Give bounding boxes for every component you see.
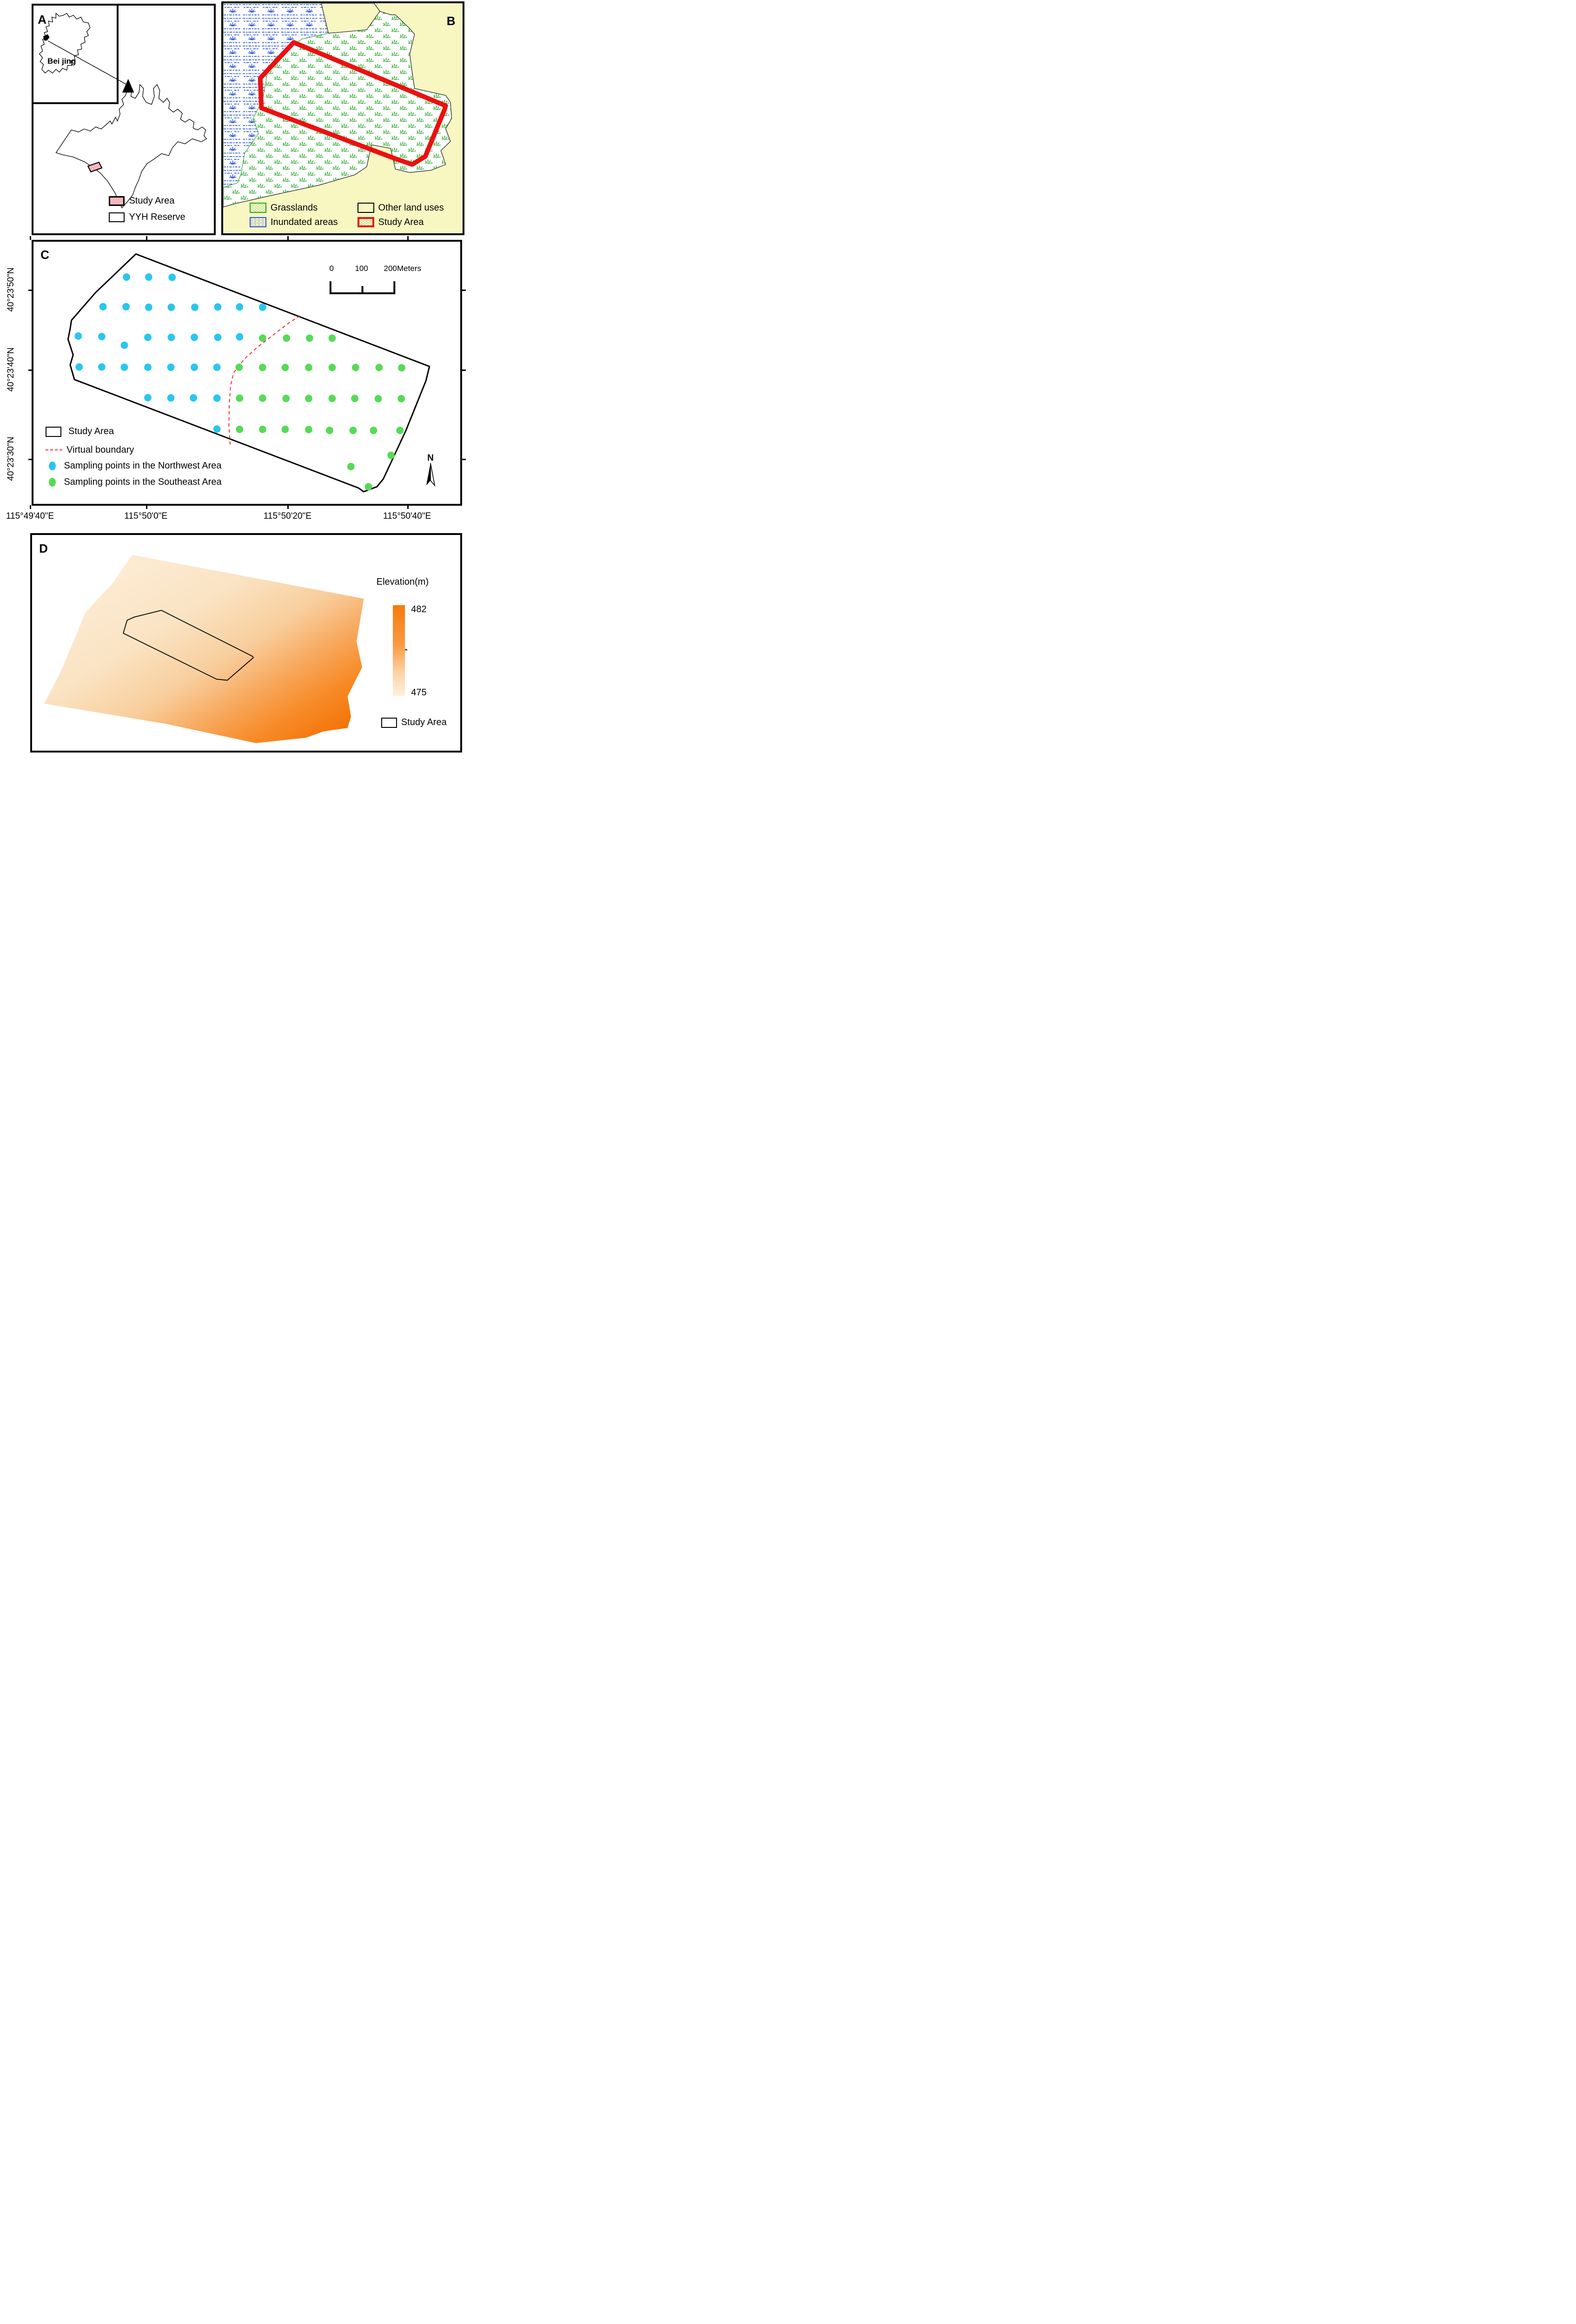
legend-label: Study Area [129, 196, 174, 206]
sampling-point-southeast [398, 395, 405, 402]
sampling-point-northwest [145, 363, 152, 371]
sampling-point-southeast [329, 334, 336, 342]
sampling-point-southeast [259, 425, 266, 433]
sampling-point-northwest [145, 394, 152, 401]
axis-tick [462, 290, 466, 291]
legend-label: Grasslands [271, 203, 318, 213]
sampling-point-northwest [145, 273, 152, 281]
legend-label: Virtual boundary [66, 445, 134, 456]
sampling-point-northwest [191, 333, 199, 341]
panel-a-letter: A [38, 13, 46, 26]
y-axis-label: 40°23'50"N [6, 268, 16, 312]
sampling-point-northwest [213, 425, 221, 433]
sampling-point-northwest [98, 333, 106, 340]
scale-0: 0 [329, 264, 333, 273]
inundated-swatch [250, 217, 266, 227]
scale-unit: Meters [397, 264, 421, 273]
sampling-point-northwest [123, 273, 131, 281]
legend-row-inundated: Inundated areas [250, 217, 338, 228]
legend-label: Inundated areas [271, 217, 338, 228]
sampling-point-northwest [213, 394, 221, 402]
study-area-red-swatch [358, 217, 374, 227]
legend-label: Study Area [401, 717, 447, 728]
study-area-swatch-c [46, 427, 61, 437]
axis-tick [146, 236, 147, 240]
virtual-boundary-swatch [46, 449, 62, 450]
sampling-point-southeast [282, 363, 289, 371]
sampling-point-southeast [329, 395, 336, 402]
sampling-point-northwest [168, 333, 175, 341]
legend-label: Other land uses [378, 203, 444, 213]
southeast-dot-swatch [49, 478, 56, 487]
sampling-point-southeast [398, 364, 406, 371]
sampling-point-northwest [190, 394, 198, 402]
x-axis-label: 115°50'40"E [383, 511, 431, 522]
sampling-point-southeast [305, 395, 313, 402]
y-axis-label: 40°23'30"N [6, 437, 16, 481]
north-arrow: N [416, 454, 445, 501]
sampling-point-northwest [121, 363, 128, 371]
landuse-map [223, 3, 463, 233]
colorbar-max: 482 [411, 604, 426, 615]
sampling-point-northwest [214, 303, 222, 310]
axis-tick [287, 236, 289, 240]
figure: Bei jing A Study Area YYH Reserve [0, 0, 473, 759]
y-axis-label: 40°23'40"N [6, 347, 16, 391]
axis-tick [407, 505, 409, 509]
legend-label: YYH Reserve [129, 212, 185, 223]
axis-tick [146, 505, 147, 509]
sampling-point-southeast [329, 363, 336, 371]
sampling-point-southeast [375, 395, 382, 402]
sampling-point-northwest [167, 394, 175, 402]
colorbar-min: 475 [411, 687, 426, 698]
scale-bar: 0 100 200 Meters [324, 264, 435, 296]
legend-label: Sampling points in the Northwest Area [60, 461, 221, 471]
sampling-point-southeast [352, 363, 359, 371]
scale-200: 200 [384, 264, 397, 273]
study-area-swatch-d [381, 718, 397, 728]
sampling-point-southeast [370, 427, 377, 434]
axis-tick [462, 459, 466, 460]
x-axis-label: 115°50'0"E [124, 511, 167, 522]
sampling-point-northwest [236, 333, 244, 340]
sampling-point-southeast [305, 363, 313, 371]
legend-row-northwest-points: Sampling points in the Northwest Area [49, 461, 221, 471]
sampling-point-southeast [376, 363, 383, 371]
sampling-point-northwest [214, 333, 222, 341]
sampling-point-northwest [98, 363, 106, 370]
sampling-point-southeast [282, 425, 289, 433]
legend-row-southeast-points: Sampling points in the Southeast Area [49, 477, 221, 488]
panel-d-letter: D [39, 542, 48, 555]
sampling-point-northwest [99, 303, 107, 310]
legend-row-yyh-reserve: YYH Reserve [109, 212, 185, 223]
sampling-point-northwest [75, 332, 82, 340]
legend-row-study-area-a: Study Area [109, 196, 174, 206]
x-axis-label: 115°50'20"E [264, 511, 311, 522]
sampling-point-southeast [259, 394, 266, 402]
sampling-point-southeast [305, 426, 313, 433]
scale-100: 100 [355, 264, 368, 273]
panel-b-letter: B [447, 15, 456, 27]
beijing-label: Bei jing [47, 57, 76, 66]
sampling-point-southeast [236, 363, 243, 371]
sampling-point-southeast [350, 427, 357, 434]
legend-row-other-land: Other land uses [358, 203, 444, 213]
grasslands-swatch [250, 203, 266, 213]
panel-c-letter: C [40, 249, 49, 261]
sampling-point-northwest [123, 303, 130, 310]
x-axis-label: 115°49'40"E [6, 511, 54, 522]
sampling-point-northwest [191, 304, 199, 311]
legend-row-virtual-boundary: Virtual boundary [46, 445, 134, 456]
axis-tick [28, 370, 32, 371]
colorbar-midtick [405, 649, 407, 650]
legend-row-study-area-b: Study Area [358, 217, 424, 228]
axis-tick [30, 505, 31, 509]
sampling-point-southeast [259, 363, 266, 371]
sampling-point-southeast [326, 427, 333, 434]
axis-tick [28, 459, 32, 460]
sampling-point-southeast [347, 462, 355, 470]
axis-tick [30, 236, 31, 240]
axis-tick [462, 370, 466, 371]
sampling-point-northwest [145, 304, 152, 311]
colorbar-title: Elevation(m) [349, 577, 456, 588]
sampling-point-southeast [283, 395, 290, 402]
northwest-dot-swatch [49, 462, 56, 470]
elevation-raster [44, 555, 364, 743]
legend-row-study-area-c: Study Area [46, 426, 114, 437]
sampling-point-southeast [306, 334, 313, 342]
axis-tick [28, 290, 32, 291]
sampling-point-northwest [169, 273, 176, 281]
legend-label: Study Area [66, 426, 114, 437]
panel-d: D Elevation(m) 482 475 Study Area [30, 533, 462, 753]
sampling-point-northwest [213, 363, 221, 371]
sampling-point-southeast [351, 395, 359, 402]
study-area-swatch [109, 196, 125, 206]
elevation-colorbar [393, 605, 405, 696]
scale-bar-ruler [329, 280, 396, 295]
sampling-point-northwest [259, 304, 266, 311]
axis-tick [407, 236, 409, 240]
legend-row-study-area-d: Study Area [381, 717, 447, 728]
sampling-point-southeast [236, 394, 244, 402]
sampling-point-northwest [145, 333, 152, 341]
sampling-point-southeast [397, 427, 404, 434]
other-land-swatch [358, 203, 374, 213]
panel-c: C 0 100 200 Meters N Study Area Virtual [32, 240, 462, 506]
sampling-point-northwest [167, 363, 175, 371]
yyh-reserve-swatch [109, 212, 125, 222]
legend-row-grasslands: Grasslands [250, 203, 318, 213]
legend-label: Study Area [378, 217, 424, 228]
sampling-point-southeast [365, 483, 372, 490]
axis-tick [287, 505, 289, 509]
sampling-point-northwest [236, 303, 244, 310]
sampling-point-southeast [259, 334, 266, 342]
sampling-point-southeast [283, 334, 291, 342]
panel-b: B Grasslands Inundated areas Other land … [221, 1, 464, 235]
north-arrow-icon [424, 462, 437, 487]
sampling-point-northwest [76, 363, 83, 370]
sampling-point-northwest [168, 304, 175, 311]
legend-label: Sampling points in the Southeast Area [60, 477, 221, 488]
sampling-point-southeast [236, 425, 244, 433]
north-label: N [416, 454, 445, 462]
sampling-points-layer [75, 273, 405, 490]
sampling-point-northwest [121, 341, 128, 349]
panel-a: Bei jing A Study Area YYH Reserve [32, 4, 216, 235]
sampling-point-southeast [388, 451, 395, 459]
sampling-point-northwest [191, 363, 199, 371]
